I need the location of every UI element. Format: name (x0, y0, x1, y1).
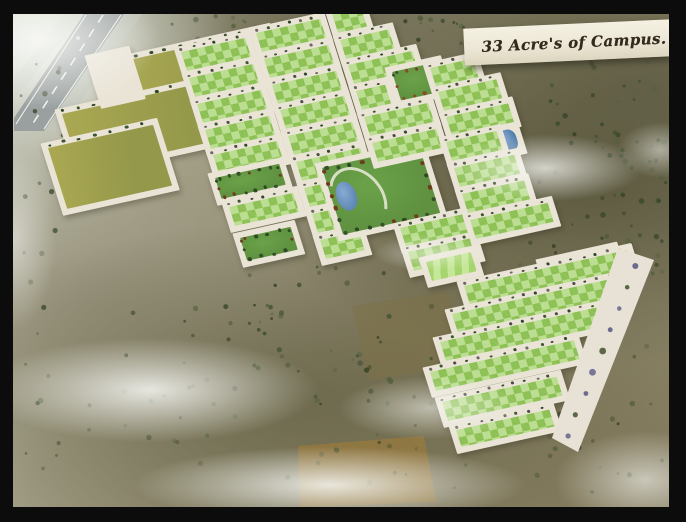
scene-world: 33 Acre's of Campus. (13, 14, 669, 507)
boundary-tree (632, 263, 638, 269)
boundary-tree (625, 285, 630, 290)
boundary-tree (608, 327, 613, 332)
boundary-tree (573, 412, 578, 417)
photo-frame: 33 Acre's of Campus. (0, 0, 686, 522)
campus-banner-label: 33 Acre's of Campus. (467, 29, 666, 56)
site-plan-photo: 33 Acre's of Campus. (13, 14, 669, 507)
boundary-road-layer (13, 14, 669, 507)
boundary-tree (599, 348, 606, 355)
boundary-tree (565, 433, 570, 438)
boundary-tree (589, 369, 596, 376)
boundary-tree (617, 306, 621, 310)
boundary-tree (583, 391, 588, 396)
